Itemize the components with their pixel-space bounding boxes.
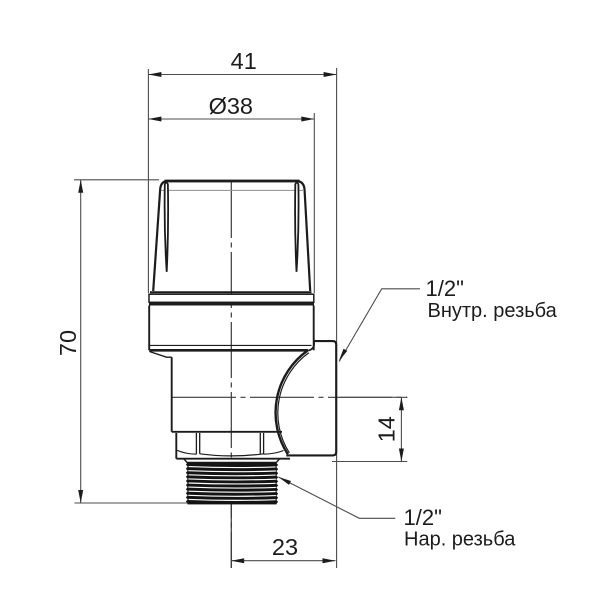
svg-text:23: 23: [272, 534, 298, 560]
svg-text:70: 70: [55, 330, 81, 356]
svg-text:Ø38: Ø38: [209, 93, 253, 119]
svg-text:14: 14: [374, 416, 400, 442]
svg-text:41: 41: [231, 48, 257, 74]
svg-text:1/2": 1/2": [404, 505, 442, 530]
svg-text:Внутр. резьба: Внутр. резьба: [428, 300, 558, 322]
svg-text:1/2": 1/2": [426, 276, 464, 301]
svg-text:Нар. резьба: Нар. резьба: [404, 529, 516, 551]
